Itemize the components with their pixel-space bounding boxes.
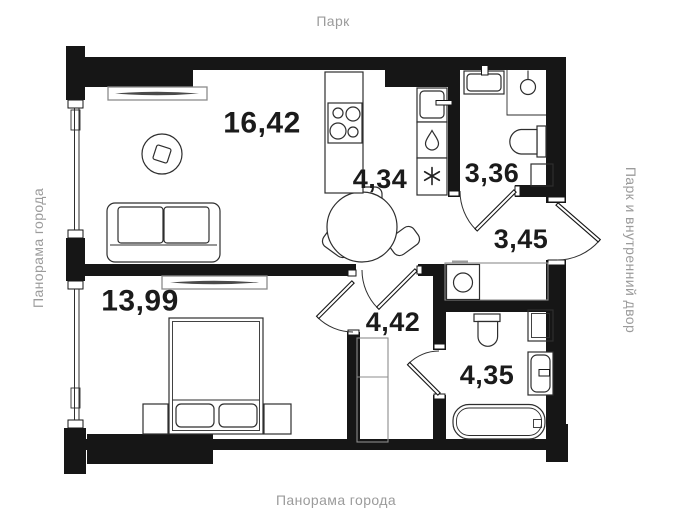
dining-set [320, 187, 423, 262]
fridge-snowflake-icon [417, 158, 447, 195]
door-jamb [434, 344, 445, 349]
door-entrance [556, 203, 600, 260]
room-area-living: 16,42 [223, 107, 301, 140]
laundry-niche [445, 261, 548, 301]
toilet-icon [474, 314, 500, 346]
caption-park-courtyard-right: Парк и внутренний двор [623, 167, 639, 333]
door-jamb [548, 197, 565, 202]
window-living-room [68, 100, 83, 238]
bathtub-icon [453, 405, 545, 440]
floor-plan-page: 16,42 4,34 3,36 3,45 13,99 4,42 4,35 Пар… [0, 0, 689, 522]
door-jamb [449, 191, 459, 196]
window-bedroom [68, 281, 83, 428]
caption-city-panorama-bottom: Панорама города [276, 492, 396, 508]
caption-park-top: Парк [316, 13, 350, 29]
coffee-table [142, 134, 182, 174]
sofa [107, 203, 220, 262]
dining-table [327, 192, 397, 262]
radiator-living [108, 87, 207, 100]
nightstand [264, 404, 291, 434]
room-area-bedroom: 13,99 [101, 285, 179, 318]
door-inner-hallway [362, 269, 417, 309]
caption-city-panorama-left: Панорама города [30, 188, 46, 308]
bed [169, 318, 263, 434]
room-area-hall-entry: 3,45 [494, 224, 549, 254]
shower-icon [507, 70, 546, 115]
door-jamb [348, 270, 356, 276]
kitchen-sink-icon [417, 88, 452, 122]
room-area-hall-inner: 4,42 [366, 307, 421, 337]
door-bathroom-main [407, 351, 440, 395]
dishwasher-droplet-icon [417, 122, 447, 158]
door-jamb [434, 394, 445, 399]
wardrobe [357, 338, 388, 442]
toilet-icon [510, 126, 546, 157]
washing-machine-icon [447, 261, 480, 300]
duct-shaft [528, 310, 553, 341]
door-jamb [348, 330, 359, 335]
door-bedroom [317, 281, 355, 332]
room-area-kitchen: 4,34 [353, 164, 408, 194]
door-jamb [548, 260, 565, 265]
floor-plan: 16,42 4,34 3,36 3,45 13,99 4,42 4,35 Пар… [0, 0, 689, 522]
nightstand [143, 404, 168, 434]
room-area-bath-main: 4,35 [460, 360, 515, 390]
door-jamb [417, 266, 422, 274]
sink-icon [528, 352, 553, 395]
room-area-bath-small: 3,36 [465, 158, 520, 188]
